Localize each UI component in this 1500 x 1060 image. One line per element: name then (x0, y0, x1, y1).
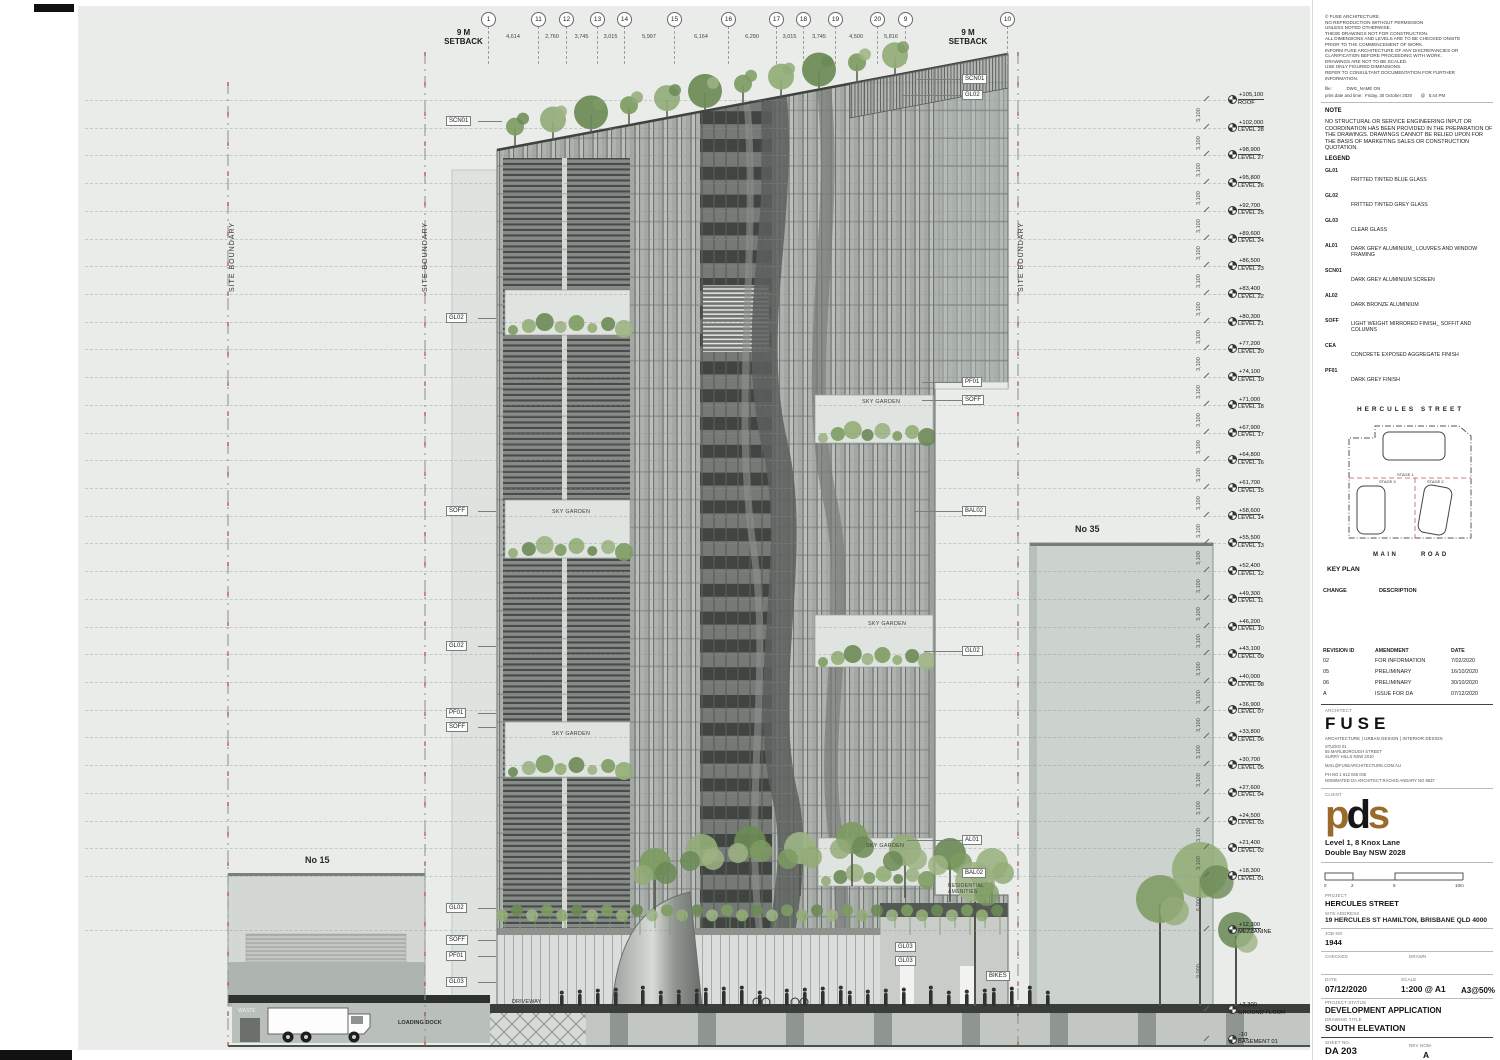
level-mark: +3,300GROUND FLOOR (1238, 1002, 1318, 1016)
floor-height-dim: 3,100 (1196, 496, 1202, 510)
level-rl: +55,500 (1238, 535, 1261, 543)
level-mark: +86,500LEVEL 23 (1238, 258, 1318, 272)
keyplan-main-label: MAIN (1373, 552, 1398, 558)
svg-text:5: 5 (1393, 883, 1396, 888)
grid-dimension: 5,997 (642, 34, 656, 40)
floor-height-dim: 3,100 (1196, 690, 1202, 704)
level-mark: +61,700LEVEL 15 (1238, 480, 1318, 494)
level-rl: +71,000 (1238, 397, 1261, 405)
level-datum-icon (1228, 871, 1237, 880)
architect-address: STUDIO 0155 MARLBOROUGH STREETSURRY HILL… (1325, 744, 1382, 760)
label-leader (478, 511, 496, 512)
level-guide-line (85, 460, 1226, 461)
grid-bubble: 12 (559, 12, 574, 27)
level-guide-line (85, 100, 1226, 101)
floor-height-dim: 3,100 (1196, 330, 1202, 344)
grid-drop-line (728, 26, 729, 64)
floor-height-dim: 3,100 (1196, 468, 1202, 482)
facade-label-left: SOFF (446, 935, 468, 945)
level-mark: +43,100LEVEL 09 (1238, 646, 1318, 660)
level-name: LEVEL 08 (1238, 682, 1318, 689)
sheet-no-label: SHEET NO. (1325, 1040, 1350, 1045)
level-rl: +46,200 (1238, 619, 1261, 627)
level-guide-line (85, 793, 1226, 794)
level-mark: +58,600LEVEL 14 (1238, 508, 1318, 522)
svg-text:10m: 10m (1455, 883, 1464, 888)
label-leader (478, 982, 496, 983)
facade-label-gl03-podium-1: GL03 (895, 942, 916, 952)
level-datum-icon (1228, 289, 1237, 298)
file-row: file: DWG_NAME ON (1325, 86, 1495, 91)
description-label: DESCRIPTION (1379, 588, 1417, 594)
legend-item: GL03CLEAR GLASS (1325, 218, 1497, 236)
facade-label-left: SOFF (446, 722, 468, 732)
level-rl: +98,900 (1238, 147, 1261, 155)
facade-label-left: SOFF (446, 506, 468, 516)
grid-drop-line (905, 26, 906, 64)
level-name: LEVEL 26 (1238, 183, 1318, 190)
label-leader (478, 940, 496, 941)
level-mark: +92,700LEVEL 25 (1238, 203, 1318, 217)
facade-label-gl03-podium-2: GL03 (895, 956, 916, 966)
floor-height-dim: 9,000 (1196, 964, 1202, 978)
level-rl: +61,700 (1238, 480, 1261, 488)
level-mark: +102,000LEVEL 28 (1238, 120, 1318, 134)
level-rl: +58,600 (1238, 508, 1261, 516)
level-rl: +105,100 (1238, 92, 1264, 100)
drawing-title-value: SOUTH ELEVATION (1325, 1023, 1405, 1033)
bikes-label: BIKES (986, 971, 1010, 981)
floor-height-dim: 3,100 (1196, 524, 1202, 538)
level-name: LEVEL 27 (1238, 155, 1318, 162)
level-rl: +21,400 (1238, 840, 1261, 848)
project-label: PROJECT (1325, 893, 1347, 898)
level-rl: +74,100 (1238, 369, 1261, 377)
level-mark: +64,800LEVEL 16 (1238, 452, 1318, 466)
title-block-panel: © FUSE ARCHITECTURE.NO REPRODUCTION WITH… (1312, 0, 1500, 1060)
label-leader (478, 956, 496, 957)
site-address-label: SITE ADDRESS (1325, 911, 1359, 916)
level-mark: +83,400LEVEL 22 (1238, 286, 1318, 300)
site-address-value: 19 HERCULES ST HAMILTON, BRISBANE QLD 40… (1325, 917, 1487, 924)
elevation-scene (0, 0, 1310, 1060)
keyplan-map: STAGE 1 STAGE 3 STAGE 2 (1331, 416, 1487, 548)
revision-cell: PRELIMINARY (1375, 680, 1411, 686)
facade-label-right: GL02 (962, 646, 983, 656)
level-mark: +46,200LEVEL 10 (1238, 619, 1318, 633)
level-guide-line (85, 266, 1226, 267)
grid-dimension: 3,015 (604, 34, 618, 40)
floor-height-dim: 3,100 (1196, 247, 1202, 261)
neighbor-label-no15: No 15 (305, 855, 330, 865)
level-name: LEVEL 05 (1238, 765, 1318, 772)
level-guide-line (85, 627, 1226, 628)
floor-height-dim: 3,100 (1196, 191, 1202, 205)
checked-label: CHECKED (1325, 954, 1348, 959)
level-guide-line (85, 710, 1226, 711)
label-leader (478, 727, 496, 728)
level-guide-line (85, 349, 1226, 350)
floor-height-dim: 3,100 (1196, 108, 1202, 122)
revision-value: A (1423, 1050, 1429, 1060)
facade-label-right: AL01 (962, 835, 982, 845)
level-rl: +49,300 (1238, 591, 1261, 599)
level-rl: -10 (1238, 1032, 1248, 1040)
general-notes: © FUSE ARCHITECTURE.NO REPRODUCTION WITH… (1325, 14, 1493, 81)
level-mark: +24,500LEVEL 03 (1238, 813, 1318, 827)
floor-height-dim: 3,100 (1196, 579, 1202, 593)
level-mark: -10BASEMENT 01 (1238, 1032, 1318, 1046)
level-rl: +86,500 (1238, 258, 1261, 266)
keyplan-road-label: ROAD (1421, 552, 1449, 558)
level-rl: +12,300 (1238, 922, 1261, 930)
scale-label: SCALE (1401, 977, 1416, 982)
grid-drop-line (776, 26, 777, 64)
level-mark: +77,200LEVEL 20 (1238, 341, 1318, 355)
level-datum-icon (1228, 428, 1237, 437)
level-rl: +67,900 (1238, 425, 1261, 433)
label-leader (478, 646, 496, 647)
level-mark: +30,700LEVEL 05 (1238, 757, 1318, 771)
level-guide-line (85, 765, 1226, 766)
grid-dimension: 4,500 (849, 34, 863, 40)
grid-bubble: 11 (531, 12, 546, 27)
revision-label: REV NOM. (1409, 1043, 1432, 1048)
level-guide-line (85, 821, 1226, 822)
revision-cell: 06 (1323, 680, 1329, 686)
level-rl: +64,800 (1238, 452, 1261, 460)
revision-cell: ISSUE FOR DA (1375, 691, 1413, 697)
level-rl: +3,300 (1238, 1002, 1258, 1010)
level-mark: +18,300LEVEL 01 (1238, 868, 1318, 882)
floor-height-dim: 3,100 (1196, 552, 1202, 566)
level-name: LEVEL 10 (1238, 626, 1318, 633)
level-name: LEVEL 24 (1238, 238, 1318, 245)
floor-height-dim: 3,100 (1196, 441, 1202, 455)
grid-drop-line (1007, 26, 1008, 64)
level-rl: +83,400 (1238, 286, 1261, 294)
floor-height-dim: 6,000 (1196, 897, 1202, 911)
revision-cell: 02 (1323, 658, 1329, 664)
level-datum-icon (1228, 677, 1237, 686)
revision-cell: 07/12/2020 (1451, 691, 1478, 697)
level-rl: +30,700 (1238, 757, 1261, 765)
level-guide-line (85, 405, 1226, 406)
revision-header: DATE (1451, 648, 1465, 654)
site-boundary-label: SITE BOUNDARY (1018, 222, 1025, 292)
neighbor-building-no15 (228, 873, 425, 1006)
level-name: LEVEL 28 (1238, 127, 1318, 134)
residential-amenities-label: RESIDENTIALAMENITIES (948, 883, 984, 895)
scale-bar: 0 2 5 10m (1323, 868, 1473, 888)
level-mark: +49,300LEVEL 11 (1238, 591, 1318, 605)
level-name: LEVEL 03 (1238, 820, 1318, 827)
grid-drop-line (538, 26, 539, 64)
level-name: LEVEL 07 (1238, 709, 1318, 716)
client-address: Level 1, 8 Knox LaneDouble Bay NSW 2028 (1325, 838, 1406, 858)
revision-cell: FOR INFORMATION (1375, 658, 1425, 664)
level-guide-line (85, 294, 1226, 295)
level-name: LEVEL 18 (1238, 404, 1318, 411)
keyplan-title: KEY PLAN (1327, 566, 1360, 573)
level-rl: +102,000 (1238, 120, 1264, 128)
legend-item: SOFFLIGHT WEIGHT MIRRORED FINISH_ SOFFIT… (1325, 318, 1497, 336)
level-name: LEVEL 09 (1238, 654, 1318, 661)
loading-dock-label: LOADING DOCK (398, 1020, 442, 1026)
drawn-label: DRAWN (1409, 954, 1426, 959)
level-datum-icon (1228, 705, 1237, 714)
level-mark: +27,600LEVEL 04 (1238, 785, 1318, 799)
neighbor-building-no35 (1030, 543, 1213, 1006)
floor-height-dim: 3,100 (1196, 801, 1202, 815)
floor-height-dim: 3,100 (1196, 856, 1202, 870)
grid-bubble: 20 (870, 12, 885, 27)
level-name: GROUND FLOOR (1238, 1010, 1318, 1017)
grid-drop-line (877, 26, 878, 64)
floor-height-dim: 3,100 (1196, 136, 1202, 150)
level-name: LEVEL 22 (1238, 294, 1318, 301)
facade-label-right: SOFF (962, 395, 984, 405)
level-name: LEVEL 21 (1238, 321, 1318, 328)
floor-height-dim: 3,100 (1196, 718, 1202, 732)
level-datum-icon (1228, 816, 1237, 825)
facade-label-right: SCN01 (962, 74, 987, 84)
sky-garden-label: SKY GARDEN (866, 843, 904, 849)
facade-label-left: GL03 (446, 977, 467, 987)
level-datum-icon (1228, 788, 1237, 797)
level-mark: +55,500LEVEL 13 (1238, 535, 1318, 549)
legend-title: LEGEND (1325, 156, 1350, 162)
level-guide-line (85, 155, 1226, 156)
label-leader (478, 121, 502, 122)
date-value: 07/12/2020 (1325, 984, 1367, 994)
grid-bubble: 13 (590, 12, 605, 27)
sheet-no-value: DA 203 (1325, 1046, 1357, 1057)
note-title: NOTE (1325, 108, 1342, 114)
level-guide-line (85, 239, 1226, 240)
scale-value: 1:200 @ A1 (1401, 984, 1446, 994)
level-mark: +33,800LEVEL 06 (1238, 729, 1318, 743)
floor-height-dim: 3,100 (1196, 635, 1202, 649)
legend-item: GL02FRITTED TINTED GREY GLASS (1325, 193, 1497, 211)
label-leader (478, 908, 496, 909)
level-rl: +27,600 (1238, 785, 1261, 793)
print-date-row: print date and time: Friday, 30 October … (1325, 93, 1500, 98)
facade-label-left: GL02 (446, 313, 467, 323)
level-datum-icon (1228, 206, 1237, 215)
level-mark: +80,300LEVEL 21 (1238, 314, 1318, 328)
level-name: LEVEL 23 (1238, 266, 1318, 273)
grid-drop-line (624, 26, 625, 64)
job-no-value: 1944 (1325, 938, 1342, 947)
floor-height-dim: 3,100 (1196, 773, 1202, 787)
level-datum-icon (1228, 622, 1237, 631)
grid-drop-line (803, 26, 804, 64)
label-leader (907, 840, 962, 841)
floor-height-dim: 3,100 (1196, 662, 1202, 676)
label-leader (478, 318, 496, 319)
grid-bubble: 17 (769, 12, 784, 27)
setback-label-left: 9 MSETBACK (436, 28, 491, 46)
level-datum-icon (1228, 234, 1237, 243)
grid-bubble: 1 (481, 12, 496, 27)
legend-item: PF01DARK GREY FINISH (1325, 368, 1497, 386)
level-name: LEVEL 25 (1238, 210, 1318, 217)
level-name: BASEMENT 01 (1238, 1039, 1318, 1046)
revision-cell: PRELIMINARY (1375, 669, 1411, 675)
level-mark: +71,000LEVEL 18 (1238, 397, 1318, 411)
floor-height-dim: 3,100 (1196, 413, 1202, 427)
level-guide-line (85, 211, 1226, 212)
facade-label-right: PF01 (962, 377, 982, 387)
grid-dimension: 3,745 (812, 34, 826, 40)
floor-height-dim: 3,100 (1196, 358, 1202, 372)
project-value: HERCULES STREET (1325, 899, 1399, 908)
legend-item: SCN01DARK GREY ALUMINIUM SCREEN (1325, 268, 1497, 286)
drawing-sheet: 9 MSETBACK 9 MSETBACK No 15 No 35 WASTE … (0, 0, 1500, 1060)
grid-bubble: 10 (1000, 12, 1015, 27)
facade-label-right: GL02 (962, 90, 983, 100)
svg-text:STAGE 2: STAGE 2 (1427, 479, 1444, 484)
sky-garden-label: SKY GARDEN (552, 731, 590, 737)
level-name: LEVEL 04 (1238, 792, 1318, 799)
facade-label-left: PF01 (446, 951, 466, 961)
date-label: DATE (1325, 977, 1337, 982)
svg-text:STAGE 3: STAGE 3 (1379, 479, 1396, 484)
sheet-mark-top (34, 4, 74, 12)
level-name: LEVEL 12 (1238, 571, 1318, 578)
status-label: PROJECT STATUS (1325, 1000, 1366, 1005)
sheet-mark-bottom (0, 1050, 72, 1060)
level-name: LEVEL 13 (1238, 543, 1318, 550)
level-guide-line (85, 682, 1226, 683)
sky-garden-label: SKY GARDEN (552, 509, 590, 515)
facade-label-right: BAL02 (962, 868, 986, 878)
neighbor-label-no35: No 35 (1075, 524, 1100, 534)
level-name: LEVEL 19 (1238, 377, 1318, 384)
level-mark: +67,900LEVEL 17 (1238, 425, 1318, 439)
legend-item: AL02DARK BRONZE ALUMINIUM (1325, 293, 1497, 311)
grid-dimension: 6,164 (694, 34, 708, 40)
facade-label-left: GL02 (446, 641, 467, 651)
grid-dimension: 3,015 (783, 34, 797, 40)
level-rl: +52,400 (1238, 563, 1261, 571)
floor-height-dim: 3,100 (1196, 746, 1202, 760)
level-guide-line (85, 571, 1226, 572)
level-datum-icon (1228, 400, 1237, 409)
floor-height-dim: 3,100 (1196, 274, 1202, 288)
label-leader (478, 713, 496, 714)
legend-item: CEACONCRETE EXPOSED AGGREGATE FINISH (1325, 343, 1497, 361)
level-mark: +89,600LEVEL 24 (1238, 231, 1318, 245)
grid-dimension: 4,614 (506, 34, 520, 40)
architect-nominated: NOMINATED DA ARCHITECT RACHID ANDARY NO … (1325, 778, 1435, 783)
grid-dimension: 5,816 (884, 34, 898, 40)
level-mark: +98,900LEVEL 27 (1238, 147, 1318, 161)
label-leader (922, 400, 962, 401)
grid-drop-line (674, 26, 675, 64)
level-guide-line (85, 516, 1226, 517)
waste-label: WASTE (238, 1008, 256, 1014)
level-guide-line (85, 848, 1226, 849)
label-leader (914, 511, 962, 512)
revision-cell: 30/10/2020 (1451, 680, 1478, 686)
level-datum-icon (1228, 95, 1237, 104)
level-datum-icon (1228, 1035, 1237, 1044)
level-mark: +52,400LEVEL 12 (1238, 563, 1318, 577)
level-datum-icon (1228, 511, 1237, 520)
label-leader (902, 95, 962, 96)
level-mark: +40,000LEVEL 08 (1238, 674, 1318, 688)
level-name: LEVEL 06 (1238, 737, 1318, 744)
level-mark: +105,100ROOF (1238, 92, 1318, 106)
grid-dimension: 2,760 (545, 34, 559, 40)
revision-header: AMENDMENT (1375, 648, 1409, 654)
client-logo: pds (1325, 798, 1387, 832)
svg-text:2: 2 (1351, 883, 1354, 888)
level-name: LEVEL 01 (1238, 876, 1318, 883)
grid-bubble: 19 (828, 12, 843, 27)
level-mark: +12,300MEZZANINE (1238, 922, 1318, 936)
floor-height-dim: 3,100 (1196, 607, 1202, 621)
grid-bubble: 9 (898, 12, 913, 27)
floor-height-dim: 3,100 (1196, 302, 1202, 316)
revision-cell: 7/02/2020 (1451, 658, 1475, 664)
level-rl: +95,800 (1238, 175, 1261, 183)
grid-drop-line (835, 26, 836, 64)
note-body: NO STRUCTURAL OR SERVICE ENGINEERING INP… (1325, 119, 1495, 152)
facade-label-left: PF01 (446, 708, 466, 718)
svg-text:STAGE 1: STAGE 1 (1397, 472, 1414, 477)
level-mark: +36,900LEVEL 07 (1238, 702, 1318, 716)
label-leader (922, 382, 962, 383)
floor-height-dim: 3,100 (1196, 219, 1202, 233)
level-guide-line (85, 377, 1226, 378)
level-name: LEVEL 11 (1238, 598, 1318, 605)
level-name: MEZZANINE (1238, 929, 1318, 936)
level-guide-line (85, 488, 1226, 489)
grid-drop-line (597, 26, 598, 64)
level-datum-icon (1228, 317, 1237, 326)
label-leader (917, 79, 962, 80)
legend-list: GL01FRITTED TINTED BLUE GLASSGL02FRITTED… (1325, 168, 1497, 393)
site-boundary-label: SITE BOUNDARY (229, 222, 236, 292)
architect-label: ARCHITECT (1325, 708, 1352, 713)
revision-cell: 05 (1323, 669, 1329, 675)
level-name: LEVEL 15 (1238, 488, 1318, 495)
level-guide-line (85, 599, 1226, 600)
revision-header: REVISION ID (1323, 648, 1354, 654)
floor-height-dim: 3,100 (1196, 829, 1202, 843)
facade-label-left: SCN01 (446, 116, 471, 126)
grid-bubble: 14 (617, 12, 632, 27)
setback-label-right: 9 MSETBACK (938, 28, 998, 46)
job-no-label: JOB NO (1325, 931, 1343, 936)
sky-garden-label: SKY GARDEN (868, 621, 906, 627)
level-datum-icon (1228, 123, 1237, 132)
floor-height-dim: 3,100 (1196, 164, 1202, 178)
level-guide-line (85, 876, 1226, 877)
level-datum-icon (1228, 925, 1237, 934)
level-datum-icon (1228, 594, 1237, 603)
status-value: DEVELOPMENT APPLICATION (1325, 1006, 1441, 1015)
grid-dimension: 3,745 (575, 34, 589, 40)
level-rl: +92,700 (1238, 203, 1261, 211)
level-rl: +89,600 (1238, 231, 1261, 239)
level-mark: +95,800LEVEL 26 (1238, 175, 1318, 189)
legend-item: AL01DARK GREY ALUMINIUM_ LOUVRES AND WIN… (1325, 243, 1497, 261)
facade-label-right: BAL02 (962, 506, 986, 516)
